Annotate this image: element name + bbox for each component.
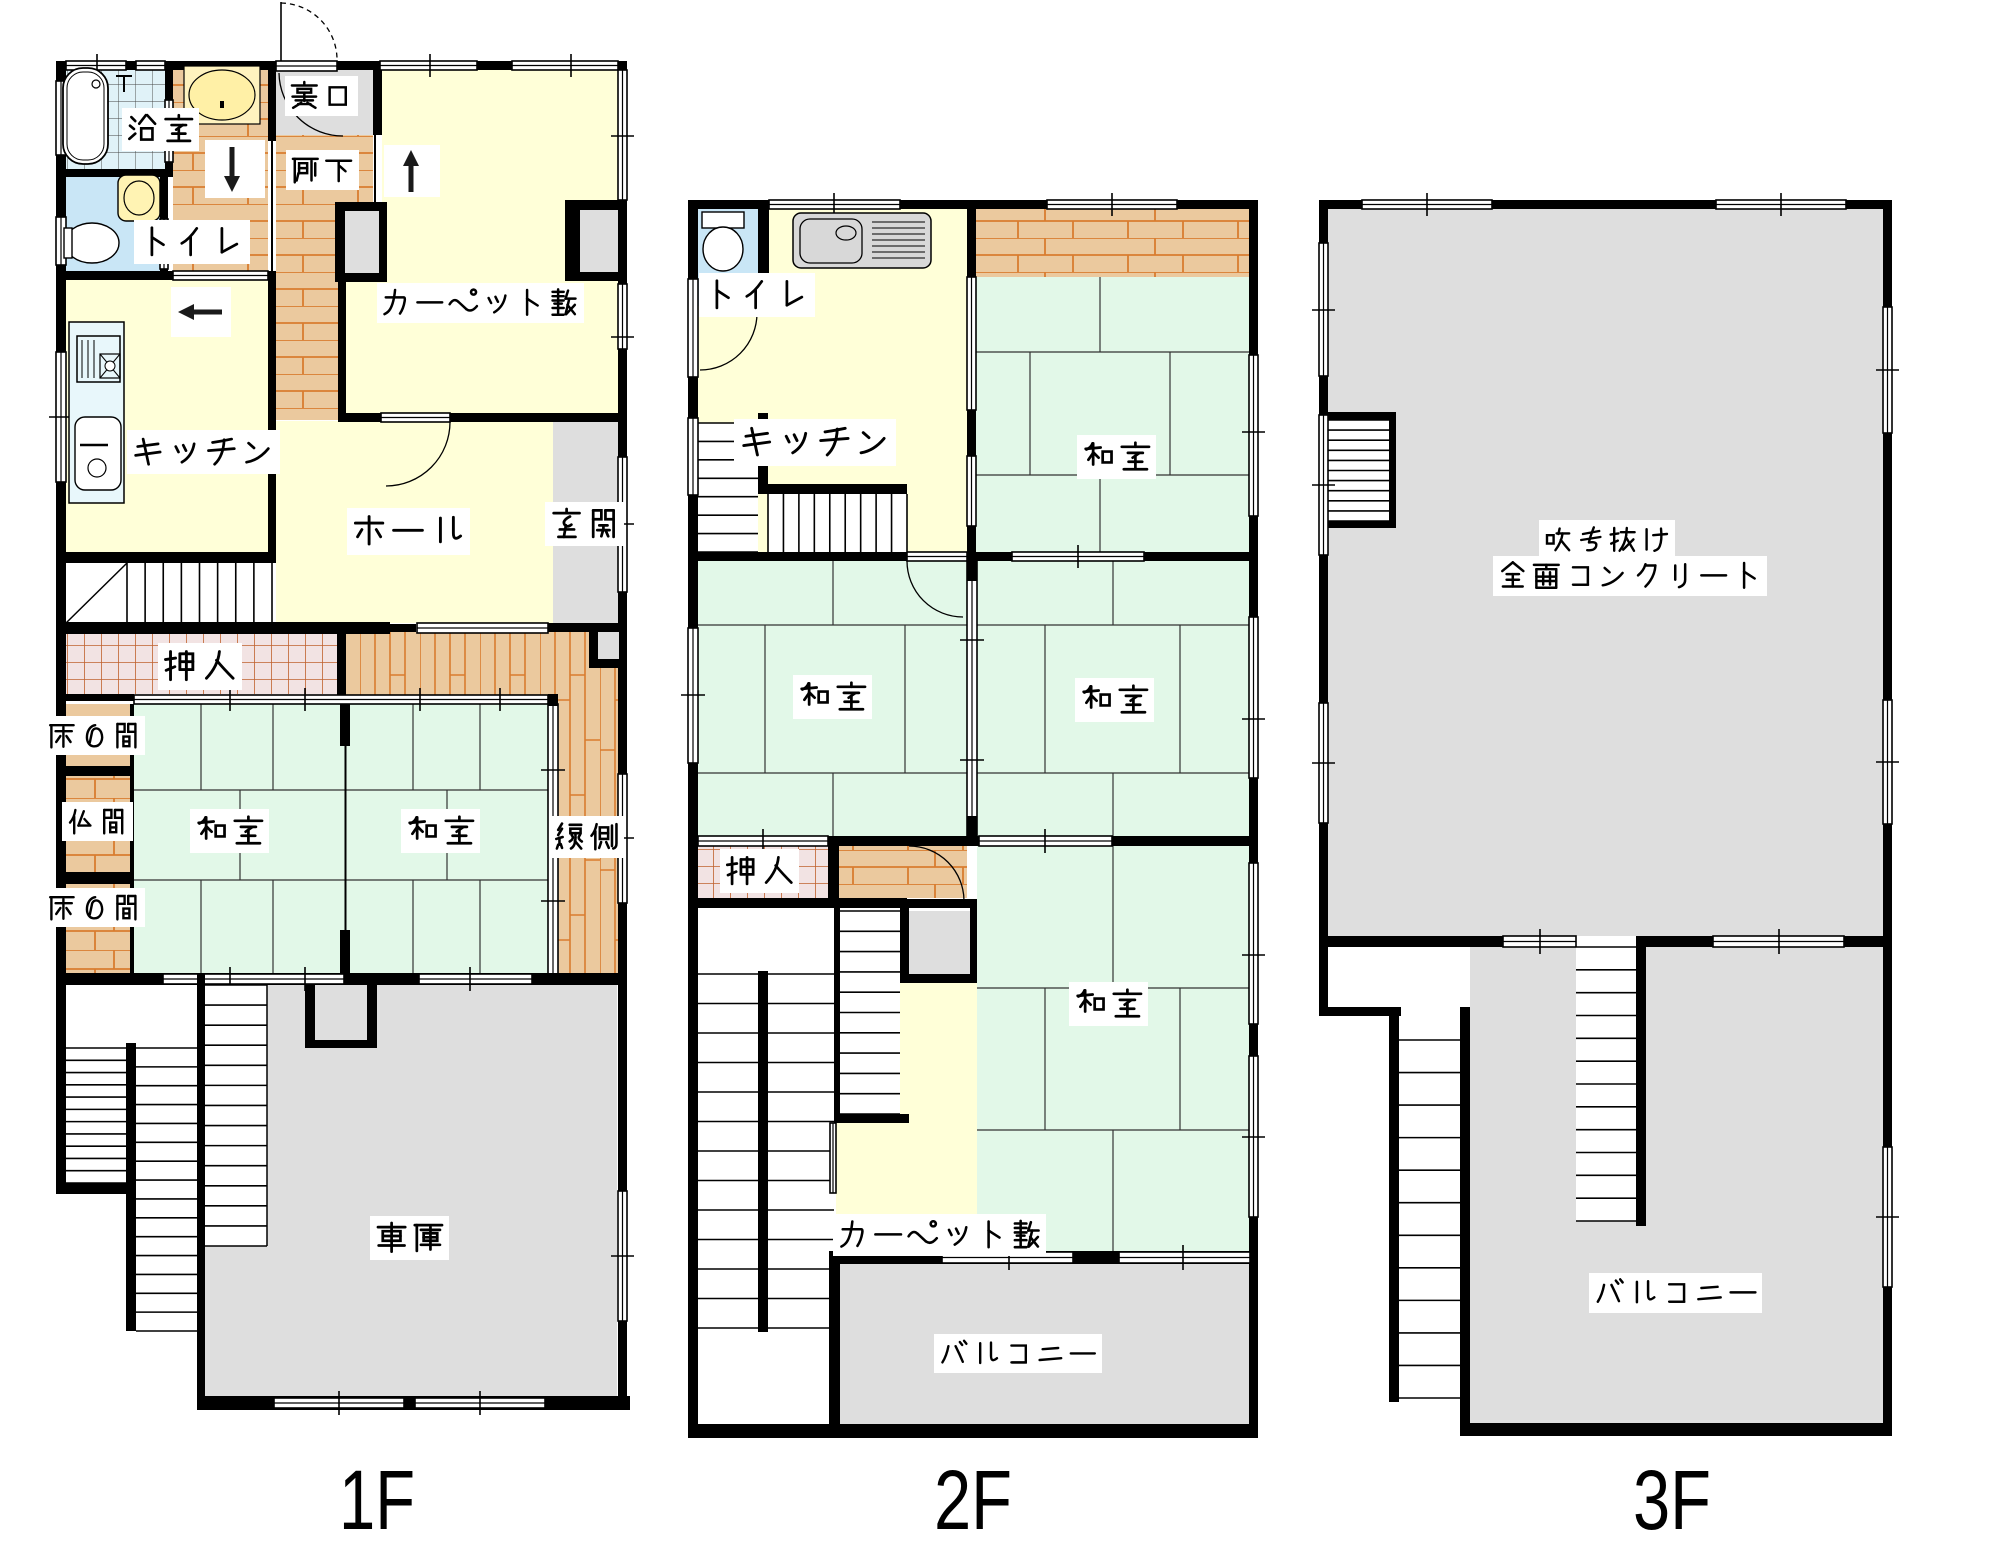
svg-text:3F: 3F [1633, 1453, 1711, 1547]
svg-text:2F: 2F [934, 1453, 1012, 1547]
svg-text:1F: 1F [339, 1453, 415, 1547]
